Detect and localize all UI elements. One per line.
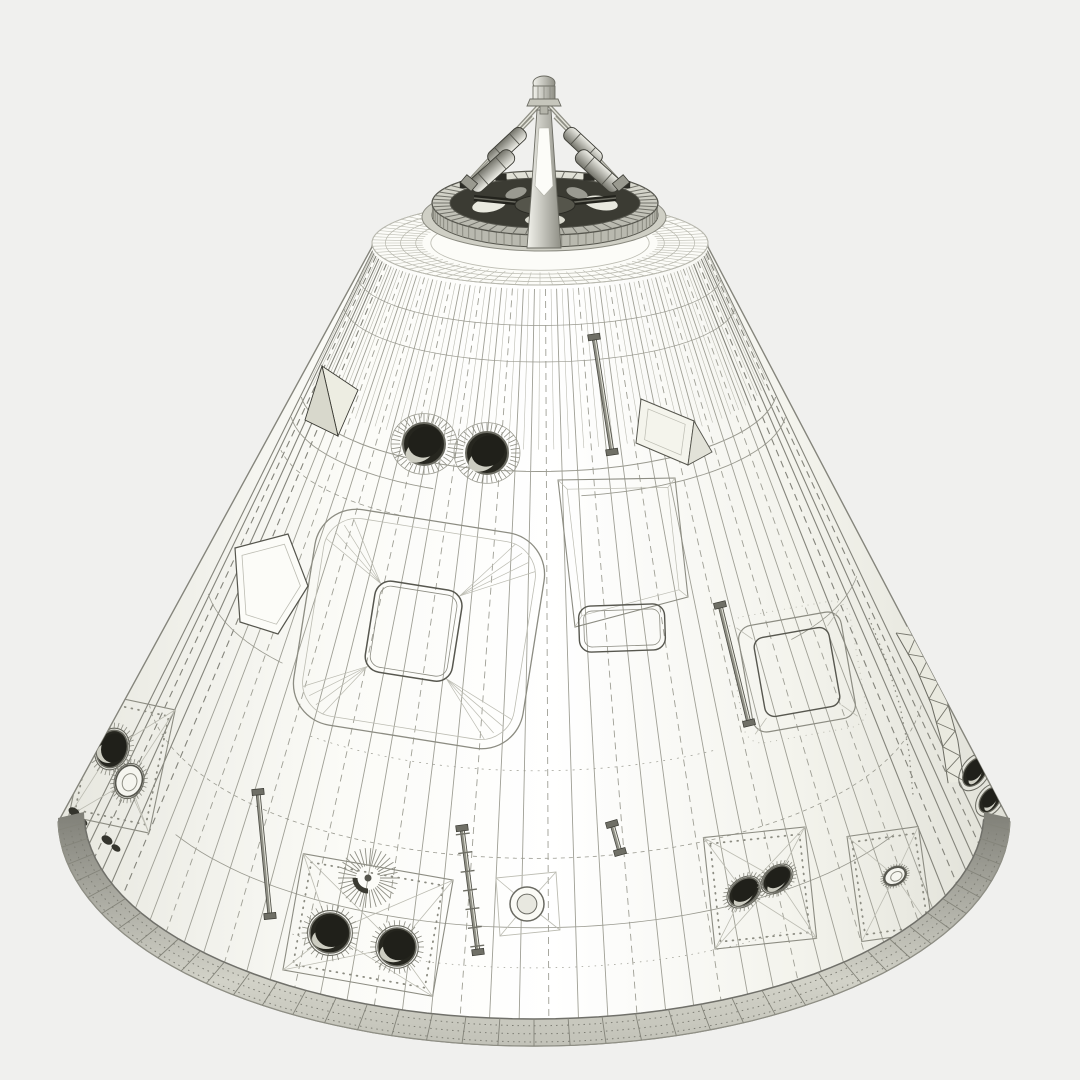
capsule-wireframe-svg — [0, 0, 1080, 1080]
render-canvas: Monochrome 3D wireframe render of an Apo… — [0, 0, 1080, 1080]
